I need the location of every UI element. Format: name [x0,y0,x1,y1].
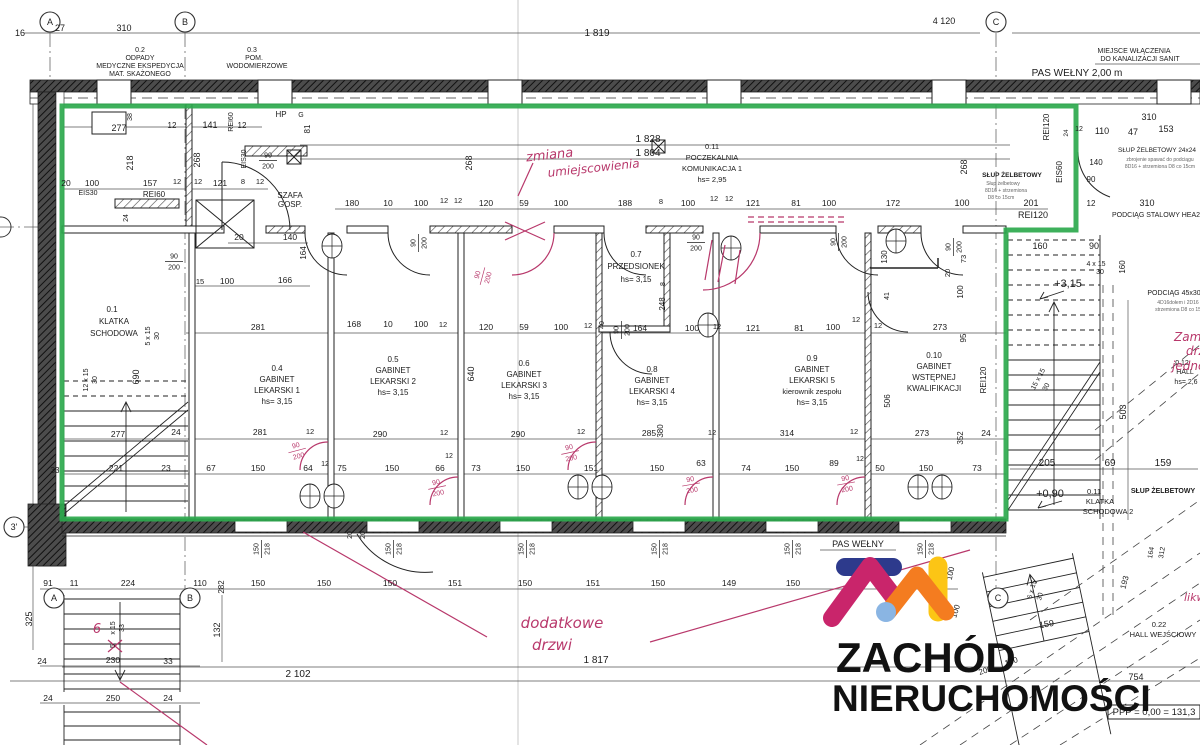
svg-text:200: 200 [262,164,274,171]
svg-text:218: 218 [796,543,803,555]
dim-label: 380 [656,424,665,438]
dim-label: 100 [554,322,568,332]
dim-label: 151 [586,578,600,588]
grid-marker-letter: C [995,593,1002,603]
dim-label: 150 [251,578,265,588]
grid-axis-lines [0,33,996,592]
dim-label: 1 828 [635,134,660,145]
dim-label: 24 [171,427,181,437]
svg-text:218: 218 [663,543,670,555]
dim-label: 640 [466,366,476,381]
dim-label: 73 [959,255,968,263]
dim-label: 12 [440,196,448,205]
opening-size-tag: 150218 [785,540,803,558]
watermark-line1: ZACHÓD [836,633,1016,681]
dim-label: 91 [43,578,53,588]
handwritten-note: zmiana [524,146,574,166]
dim-label: D8 co 15cm [988,195,1015,201]
svg-text:200: 200 [484,271,494,284]
dim-label: 140 [283,232,297,242]
dim-label: 24 [981,428,991,438]
dim-label: 151 [448,578,462,588]
handwritten-note: Zamiana [1173,330,1200,344]
dim-label: 12 [584,321,592,330]
handwritten-note: likwid [1184,591,1200,604]
dim-label: REI60 [228,112,235,132]
handwritten-note: 6 [93,622,101,637]
dim-label: 81 [791,198,801,208]
dim-label: 75 [337,463,347,473]
opening-size-tag: 90200 [946,238,964,256]
dim-label: strzemiona D8 co 15 [1155,307,1200,313]
dim-label: 503 [1118,404,1128,419]
opening-size-tag: 90200 [427,478,448,499]
dim-label: 12 [194,177,202,186]
svg-text:200: 200 [957,241,964,253]
dim-label: 63 [696,458,706,468]
room-label: 0.11 [1087,487,1101,496]
dim-label: PAS WEŁNY 2,00 m [1032,68,1123,79]
dim-label: 100 [414,319,428,329]
svg-text:150: 150 [386,543,393,555]
dim-label: 140 [1089,158,1103,167]
svg-text:90: 90 [411,239,418,247]
dim-label: 153 [1158,124,1173,134]
room-label: GABINET [375,366,410,375]
room-label: LEKARSKI 3 [501,381,547,390]
dim-label: 12 [725,194,733,203]
svg-text:200: 200 [422,237,429,249]
dim-label: 160 [1118,260,1127,274]
svg-text:90: 90 [565,444,574,452]
dim-label: WODOMIERZOWE [226,63,287,70]
svg-text:90: 90 [946,243,953,251]
dim-label: 150 [786,578,800,588]
dim-label: REI60 [143,190,166,199]
dim-label: 12 x 15 [83,368,90,391]
dim-label: 12 [256,177,264,186]
svg-text:90: 90 [432,479,441,487]
dim-label: 100 [681,198,695,208]
dim-label: 12 [168,121,177,130]
dim-label: 27 [55,23,65,33]
dim-label: 90 [1089,241,1099,251]
dim-label: 277 [111,123,126,133]
dim-label: 20 [360,531,367,539]
dim-label: EIS60 [1055,161,1064,183]
dim-label: 230 [106,655,120,665]
dim-label: 164 [299,246,308,260]
dim-label: 150 [251,463,265,473]
opening-size-tag: 150218 [918,540,936,558]
room-label: hs= 3,15 [378,388,409,397]
dim-label: 159 [1038,618,1055,630]
dim-label: 8 [660,282,667,286]
dim-label: 47 [1128,127,1138,137]
room-label: 0.4 [271,364,283,373]
dim-label: 24 [43,693,53,703]
dim-label: 8 [241,177,245,186]
room-label: 0.6 [518,359,530,368]
dim-label: EIS30 [78,190,97,197]
room-label: hs= 3,15 [797,398,828,407]
dim-label: 4D16dołem i 2D16 [1157,300,1199,306]
dim-label: 5 [110,644,117,648]
exterior-wall-bottom [62,519,1006,536]
room-label: LEKARSKI 4 [629,387,675,396]
dim-label: 290 [511,429,525,439]
dim-label: 12 [321,461,329,468]
sink-symbol [908,475,928,499]
dim-label: PODCIĄG STALOWY HEA2 [1112,212,1200,219]
dim-label: 12 [713,322,721,331]
dim-label: 160 [1032,241,1047,251]
dim-label: MAT. SKAŻONEGO [109,69,171,78]
svg-text:150: 150 [918,543,925,555]
dim-label: 224 [121,578,135,588]
dim-label: 12 [306,427,314,436]
dim-label: 73 [471,463,481,473]
room-label: POCZEKALNIA [686,153,739,162]
handwritten-note: drzwi [1186,344,1200,358]
dim-label: 12 [850,427,858,436]
dim-label: 100 [954,198,969,208]
svg-text:150: 150 [254,543,261,555]
sink-symbol [300,484,320,508]
dim-label: +0,90 [1036,488,1064,500]
dim-label: 281 [251,322,265,332]
handwritten-note: drzwi [532,636,573,654]
dim-label: 0.2 [135,47,145,54]
dim-label: 12 [856,456,864,463]
room-label: GABINET [259,375,294,384]
dim-label: 12 [1087,199,1096,208]
dim-label: 110 [1095,126,1109,136]
dim-label: 290 [373,429,387,439]
dim-label: 12 [454,196,462,205]
svg-text:200: 200 [841,485,854,494]
dim-label: 33 [163,656,173,666]
dim-label: 30 [154,332,161,340]
svg-text:200: 200 [686,486,699,495]
dim-label: 8 [659,197,663,206]
dim-label: 1 817 [583,655,608,666]
dim-label: 0.3 [247,47,257,54]
dim-label: 248 [658,297,667,311]
dim-label: 11 [70,578,79,588]
room-label: hs= 2,95 [698,175,727,184]
room-label: LEKARSKI 1 [254,386,300,395]
opening-size-tag: 90200 [165,254,183,272]
dim-label: 277 [111,429,125,439]
svg-text:90: 90 [841,475,850,483]
dim-label: ODPADY [125,55,154,62]
room-label: 0.1 [106,305,118,314]
dim-label: REI120 [1018,210,1048,220]
dim-label: 81 [303,124,312,133]
svg-text:200: 200 [168,265,180,272]
dim-label: 5 x 15 [145,326,152,345]
dim-label: 12 [445,453,453,460]
opening-size-tag: 90200 [411,234,429,252]
dim-label: 66 [435,463,445,473]
room-label: 0.10 [926,351,942,360]
dim-label: 24 [123,214,130,222]
dim-label: 314 [780,428,794,438]
dim-label: 89 [829,458,839,468]
dim-label: 30 [92,376,99,384]
svg-text:150: 150 [652,543,659,555]
room-label: hs= 3,15 [262,397,293,406]
dim-label: 12 [852,315,860,324]
opening-size-tag: 90200 [472,265,494,287]
dim-label: 281 [253,427,267,437]
svg-text:200: 200 [842,236,849,248]
dim-label: 132 [212,622,222,637]
dim-label: SŁUP ŻELBETOWY 24x24 [1118,145,1196,154]
room-label: 0.8 [646,365,658,374]
svg-text:90: 90 [692,235,700,242]
dim-label: 30 [1036,592,1045,601]
room-label: 0.5 [387,355,399,364]
dim-label: SŁUP ŻELBETOWY [1131,487,1196,495]
dim-label: 67 [206,463,216,473]
opening-size-tag: 90200 [687,235,705,253]
dim-label: 20 [61,178,71,188]
svg-text:200: 200 [292,452,305,462]
svg-text:200: 200 [432,489,445,498]
dim-label: 506 [883,394,892,408]
dim-label: 24 [163,693,173,703]
dim-label: 59 [519,198,529,208]
dim-label: 110 [193,578,207,588]
room-label: GABINET [916,362,951,371]
svg-text:90: 90 [831,238,838,246]
dim-label: 168 [347,319,361,329]
dim-label: 151 [584,463,598,473]
dim-label: 150 [650,463,664,473]
dim-label: 2 102 [285,669,310,680]
room-label: 0.22 [1152,620,1167,629]
dim-label: 310 [116,23,131,33]
grid-marker-letter: C [993,17,1000,27]
svg-text:90: 90 [474,270,483,279]
dim-label: 149 [722,578,736,588]
room-label: LEKARSKI 2 [370,377,416,386]
dim-label: 33 [119,624,126,632]
dim-label: 218 [125,155,135,170]
dim-label: 273 [915,428,929,438]
sink-symbol [324,484,344,508]
room-label: GABINET [506,370,541,379]
dim-label: 12 [1075,126,1083,133]
door-window-tags: 9020090200902009020090200902009020015021… [165,153,964,559]
dim-label: 268 [959,159,969,174]
svg-text:200: 200 [625,324,632,336]
dim-label: 130 [880,250,889,264]
svg-text:150: 150 [519,543,526,555]
room-label: SCHODOWA 2 [1083,507,1134,516]
dim-label: 12 [710,194,718,203]
dim-label: 282 [217,580,226,594]
dim-label: 16 [15,28,25,38]
handwritten-note: jednoskrz [1170,359,1200,373]
svg-text:218: 218 [929,543,936,555]
room-label: 0.9 [806,354,818,363]
svg-text:200: 200 [565,454,578,463]
dim-label: 690 [131,369,141,384]
dim-label: 24 [1063,129,1070,137]
dim-label: 20 [347,531,354,539]
room-label: hs= 3,15 [621,275,652,284]
svg-text:218: 218 [397,543,404,555]
dim-label: 41 [884,292,891,300]
dim-label: 50 [875,463,885,473]
room-label: 0.7 [630,250,642,259]
dim-label: 268 [192,152,202,167]
svg-text:90: 90 [170,254,178,261]
dim-label: 172 [886,198,900,208]
dim-label: 90 [1087,175,1096,184]
grid-marker-letter: B [182,17,188,27]
dim-label: 150 [785,463,799,473]
stairs-bottom-left [64,595,180,745]
dim-label: 100 [220,276,234,286]
dim-label: 273 [933,322,947,332]
svg-text:150: 150 [785,543,792,555]
dim-label: PODCIĄG 45x30 [1147,290,1200,297]
dim-label: 1 804 [635,148,660,159]
sink-symbol [322,234,342,258]
svg-text:218: 218 [530,543,537,555]
room-label: hs= 2,6 [1174,379,1197,386]
dim-label: 180 [345,198,359,208]
dim-label: 38 [127,113,134,121]
dim-label: 33 [51,466,60,475]
dim-label: 120 [479,198,493,208]
dim-label: 12 [173,177,181,186]
room-label: KLATKA [99,317,130,326]
dim-label: 64 [303,463,313,473]
opening-size-tag: 90200 [560,443,581,464]
dim-label: G [298,112,303,119]
room-label: HALL WEJŚCIOWY [1130,630,1197,639]
dim-label: 8D16 + strzemiona D8 co 15cm [1125,164,1195,170]
dim-label: 100 [956,285,965,299]
dim-label: 10 [383,319,393,329]
dim-label: EIS30 [241,149,248,168]
opening-size-tag: 90200 [831,233,849,251]
dim-label: 150 [516,463,530,473]
dim-label: 30 [1096,269,1104,276]
dim-label: DO KANALIZACJI SANIT [1100,56,1180,63]
dim-label: x 15 [110,621,117,634]
floor-plan-drawing: ABC3'ABC 16273101 8194 1200.2ODPADYMEDYC… [0,0,1200,745]
dim-label: 121 [213,178,227,188]
room-label: KLATKA [1086,497,1114,506]
dim-label: SZAFA [277,191,303,200]
dim-label: 69 [1104,458,1116,469]
dim-label: 12 [708,428,716,437]
dim-label: 24 [37,656,47,666]
dim-label: 12 [439,320,447,329]
svg-text:90: 90 [614,326,621,334]
dim-label: 141 [202,120,217,130]
room-label: hs= 3,15 [509,392,540,401]
dim-label: 150 [317,578,331,588]
dim-label: 250 [106,693,120,703]
dim-label: 81 [794,323,804,333]
dim-label: 201 [1023,198,1038,208]
dim-label: 12 [874,321,882,330]
sink-symbol [592,475,612,499]
dim-label: 325 [24,611,34,626]
dim-label: 59 [519,322,529,332]
dim-label: 4 120 [933,16,956,26]
dim-label: PAS WEŁNY [832,539,884,549]
room-label: PRZEDSIONEK [607,262,665,271]
dim-label: POM. [245,55,263,62]
handwritten-note: dodatkowe [521,614,604,632]
room-label: KWALIFIKACJI [907,384,961,393]
dim-label: 121 [746,198,760,208]
svg-text:200: 200 [690,246,702,253]
dim-label: 150 [383,578,397,588]
dim-label: 100 [414,198,428,208]
dim-label: 8D16 + strzemiona [985,188,1027,194]
interior-walls [115,104,938,519]
dim-label: 20 [943,269,952,277]
dim-label: 23 [161,463,171,473]
sink-symbol [568,475,588,499]
dim-label: 100 [822,198,836,208]
dim-label: 100 [85,178,99,188]
opening-size-tag: 90200 [286,440,308,462]
dim-label: 12 [440,428,448,437]
dim-label: 100 [685,323,699,333]
watermark-line2: NIERUCHOMOŚCI [832,677,1151,719]
room-label: WSTĘPNEJ [912,373,956,382]
grid-marker-letter: A [51,593,57,603]
dim-label: 166 [278,275,292,285]
room-label: hs= 3,15 [637,398,668,407]
dim-label: 159 [1155,458,1172,469]
room-label: LEKARSKI 5 [789,376,835,385]
dim-label: 352 [956,431,965,445]
dim-label: 10 [383,198,393,208]
opening-size-tag: 150218 [386,540,404,558]
dim-label: Słup żelbetowy [986,181,1020,187]
dim-label: 150 [651,578,665,588]
dim-label: 268 [464,155,474,170]
dim-label: 150 [385,463,399,473]
dim-label: 150 [518,578,532,588]
dim-label: 188 [618,198,632,208]
opening-size-tag: 150218 [519,540,537,558]
opening-size-tag: 150218 [652,540,670,558]
dim-label: 73 [972,463,982,473]
watermark-logo: ZACHÓD NIERUCHOMOŚCI [832,566,1151,719]
dim-label: HP [275,110,286,119]
dim-label: 30 [1042,382,1052,392]
dim-label: REI120 [979,366,988,393]
dim-label: 100 [554,198,568,208]
room-label: kierownik zespołu [782,387,841,396]
room-label: GABINET [634,376,669,385]
svg-text:90: 90 [686,476,695,484]
dim-label: 310 [1141,112,1156,122]
sink-symbol [932,475,952,499]
